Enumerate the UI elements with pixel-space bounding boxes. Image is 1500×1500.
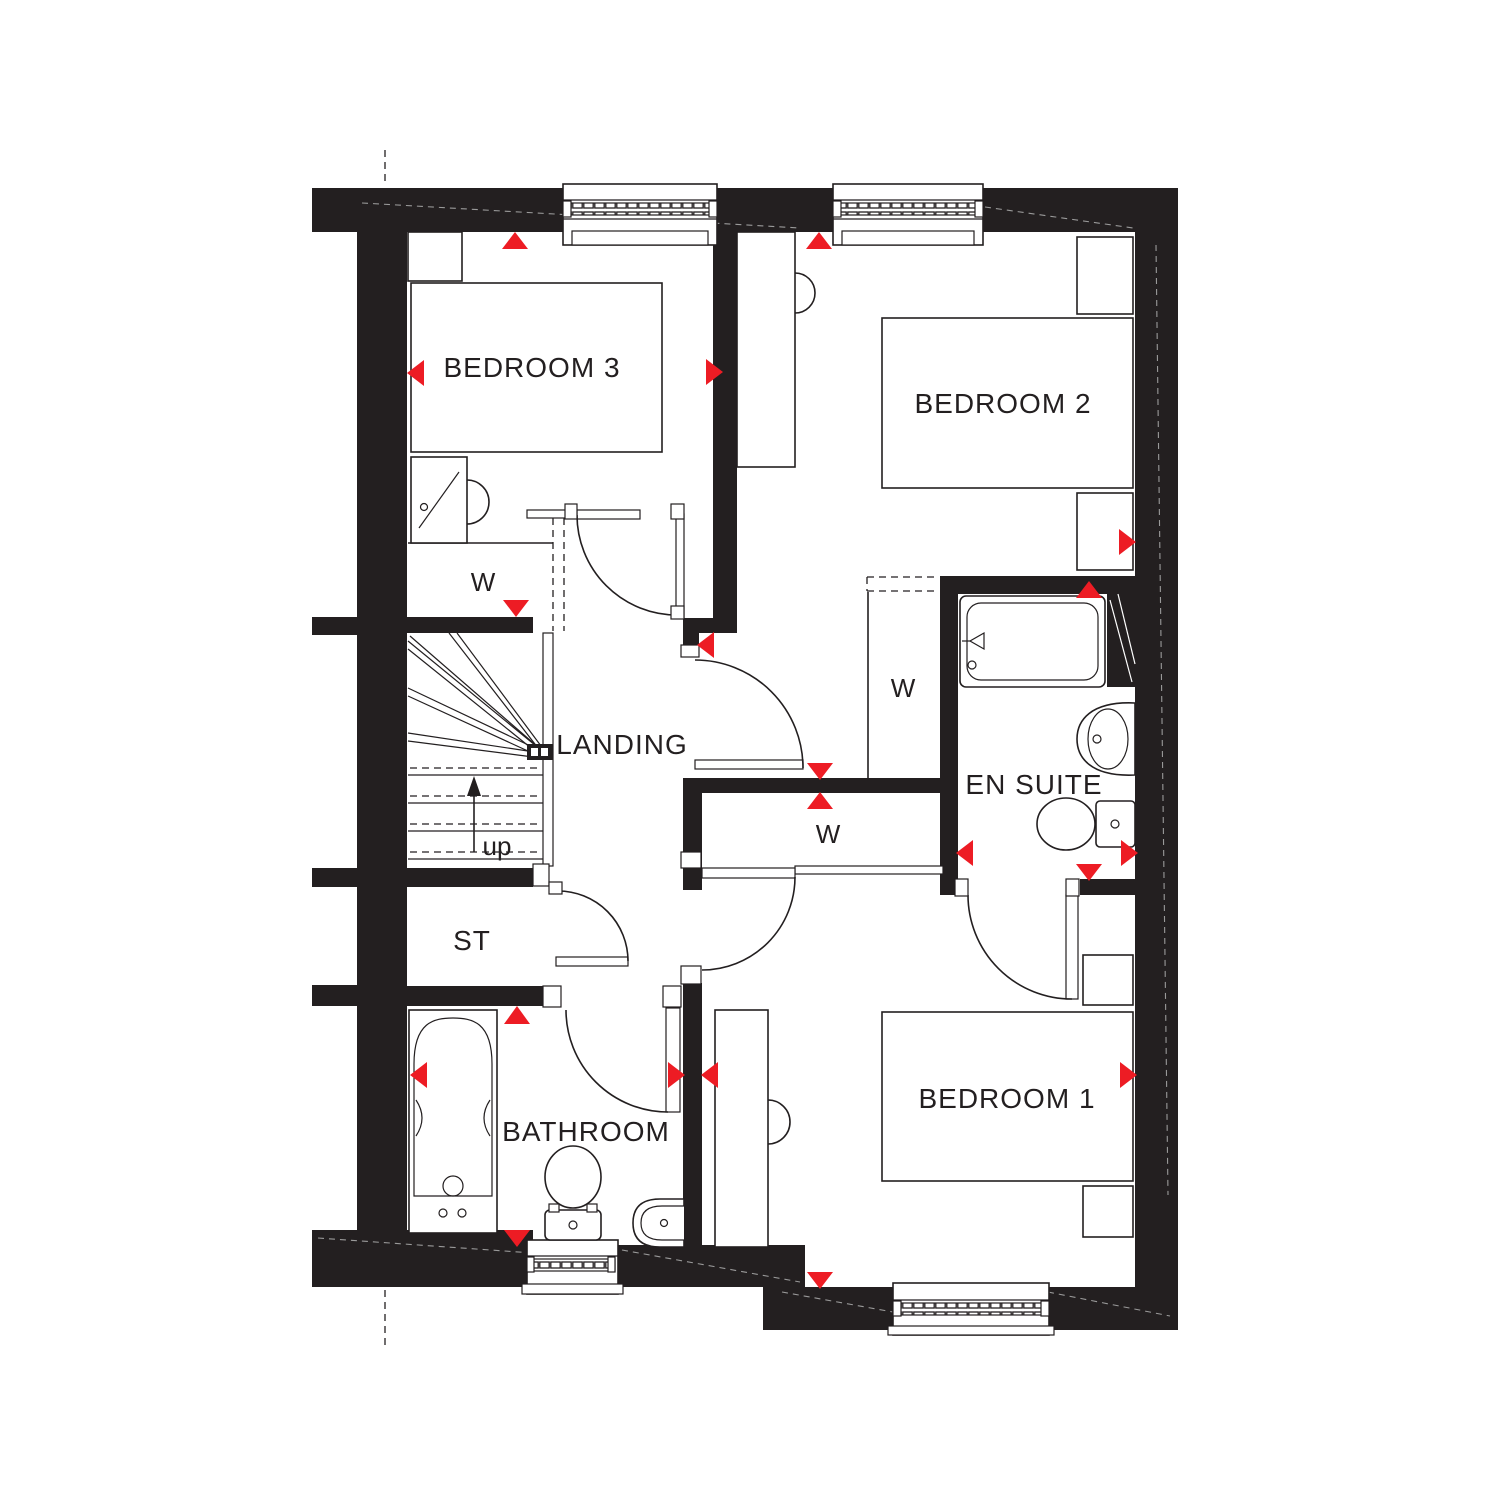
wardrobe-label: W [471, 567, 496, 597]
floor-plan-page: BEDROOM 3 BEDROOM 2 LANDING EN SUITE ST … [0, 0, 1500, 1500]
window-bathroom [522, 1240, 623, 1294]
duct [1107, 592, 1135, 687]
ensuite-toilet [1037, 798, 1135, 850]
bedside-table [1083, 1186, 1133, 1237]
shower-bath [960, 596, 1105, 687]
window-bedroom-1 [888, 1283, 1054, 1335]
bedside-table [1077, 237, 1133, 314]
stair-newel [527, 744, 553, 760]
bathroom-label: BATHROOM [502, 1116, 670, 1147]
storage-label: ST [453, 925, 491, 956]
cabinet [408, 232, 462, 281]
wardrobe-label: W [816, 819, 841, 849]
floor-plan: BEDROOM 3 BEDROOM 2 LANDING EN SUITE ST … [0, 0, 1500, 1500]
bathroom-basin [633, 1199, 684, 1247]
bedroom-3-label: BEDROOM 3 [443, 352, 620, 383]
window-bedroom-2 [833, 184, 983, 245]
bedroom-2-label: BEDROOM 2 [914, 388, 1091, 419]
wardrobe-label: W [891, 673, 916, 703]
en-suite-label: EN SUITE [965, 769, 1102, 800]
bedroom-1-label: BEDROOM 1 [918, 1083, 1095, 1114]
bedside-table [1077, 493, 1133, 570]
landing-label: LANDING [556, 729, 687, 760]
bathtub [409, 1010, 497, 1233]
bedside-table [1083, 955, 1133, 1005]
bathroom-toilet [545, 1146, 601, 1240]
window-bedroom-3 [563, 184, 717, 245]
stairs-up-label: up [483, 831, 512, 861]
